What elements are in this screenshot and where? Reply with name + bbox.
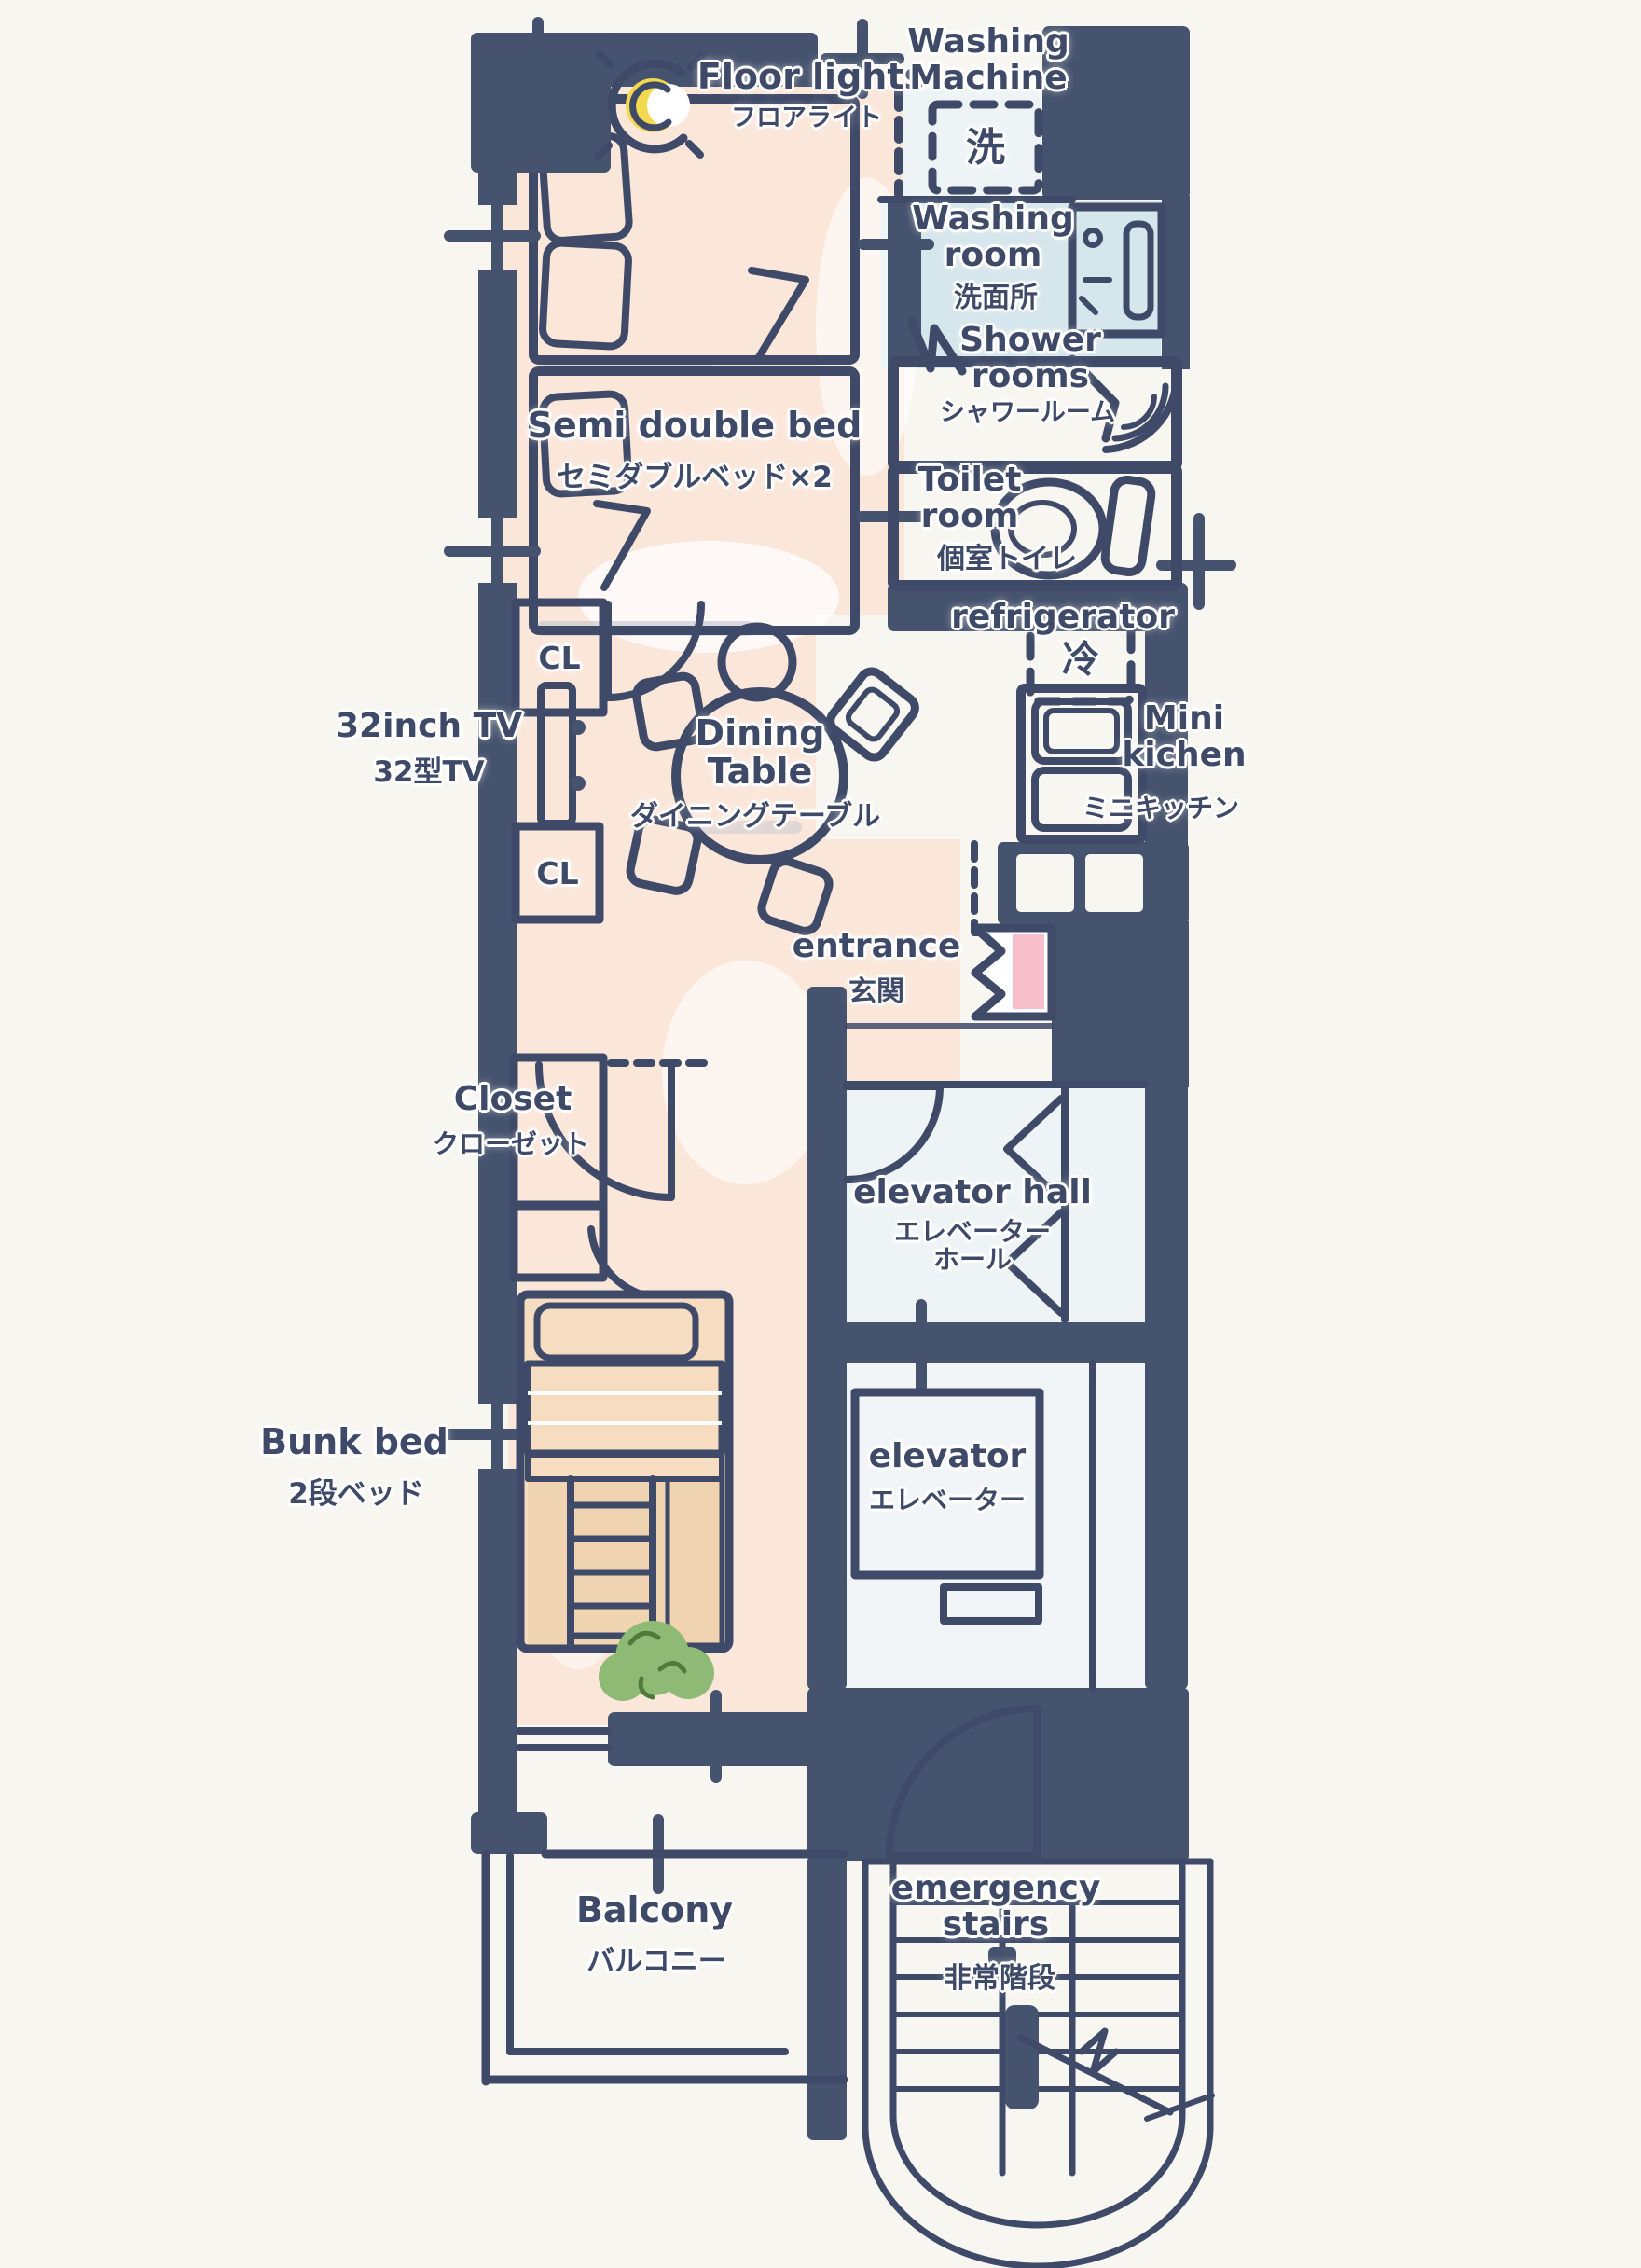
floor-plan: Floor lights フロアライト Washing Machine 洗 Wa… — [0, 0, 1641, 2268]
label-washing-room-en: Washing room — [900, 201, 1086, 274]
label-emergency-stairs-en: emergency stairs — [884, 1871, 1108, 1943]
label-shower-rooms-en: Shower rooms — [928, 323, 1133, 395]
label-mini-kitchen-en: Mini kichen — [1105, 701, 1263, 774]
floor-plan-drawing — [0, 0, 1641, 2268]
label-dining-table-en: Dining Table — [685, 714, 834, 791]
label-washing-machine-en: Washing Machine — [881, 24, 1096, 97]
label-toilet-room-en: Toilet room — [900, 463, 1040, 535]
bunk-bed-icon — [520, 1294, 729, 1649]
label-elevator-hall-ja: エレベーターホール — [889, 1218, 1056, 1274]
